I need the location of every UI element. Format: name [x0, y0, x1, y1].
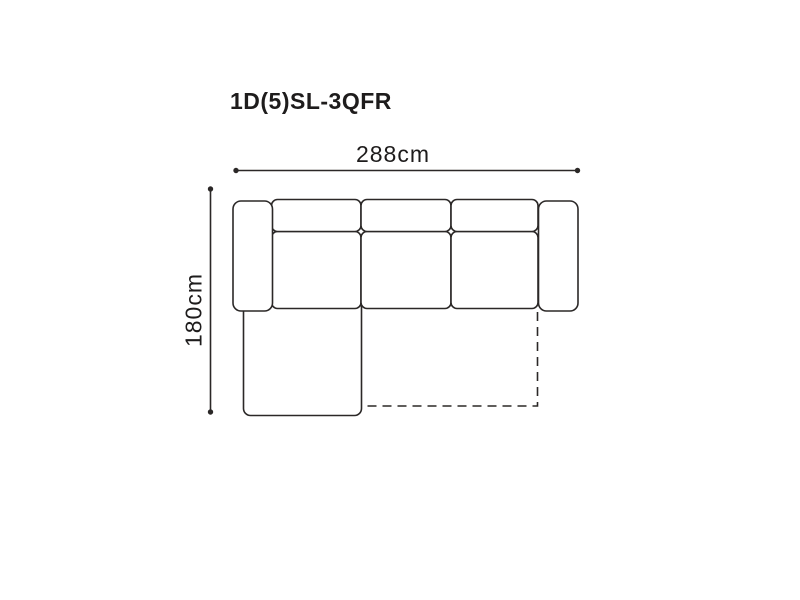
- seat-cushion-2: [361, 232, 451, 309]
- backrest-cushion-1: [272, 200, 362, 232]
- seat-cushion-3: [451, 232, 538, 309]
- backrest-cushion-2: [361, 200, 451, 232]
- backrest-cushion-3: [451, 200, 538, 232]
- width-dimension-right-dot: [575, 168, 580, 173]
- left-armrest: [233, 201, 273, 311]
- fold-out-bed-dashed-outline: [362, 312, 538, 406]
- product-model-title: 1D(5)SL-3QFR: [230, 88, 392, 115]
- sofa-dimension-diagram: 288cm 180cm: [0, 0, 800, 600]
- depth-dimension-top-dot: [208, 186, 213, 191]
- width-dimension: 288cm: [233, 141, 580, 173]
- depth-dimension: 180cm: [181, 186, 214, 414]
- sofa-outline: [233, 200, 578, 416]
- right-armrest: [539, 201, 579, 311]
- diagram-canvas: 1D(5)SL-3QFR 288cm 180cm: [0, 0, 800, 600]
- width-dimension-label: 288cm: [356, 141, 430, 167]
- seat-cushion-1: [272, 232, 362, 309]
- width-dimension-left-dot: [233, 168, 238, 173]
- depth-dimension-bottom-dot: [208, 409, 213, 414]
- chaise-longue: [244, 296, 362, 416]
- depth-dimension-label: 180cm: [181, 273, 207, 347]
